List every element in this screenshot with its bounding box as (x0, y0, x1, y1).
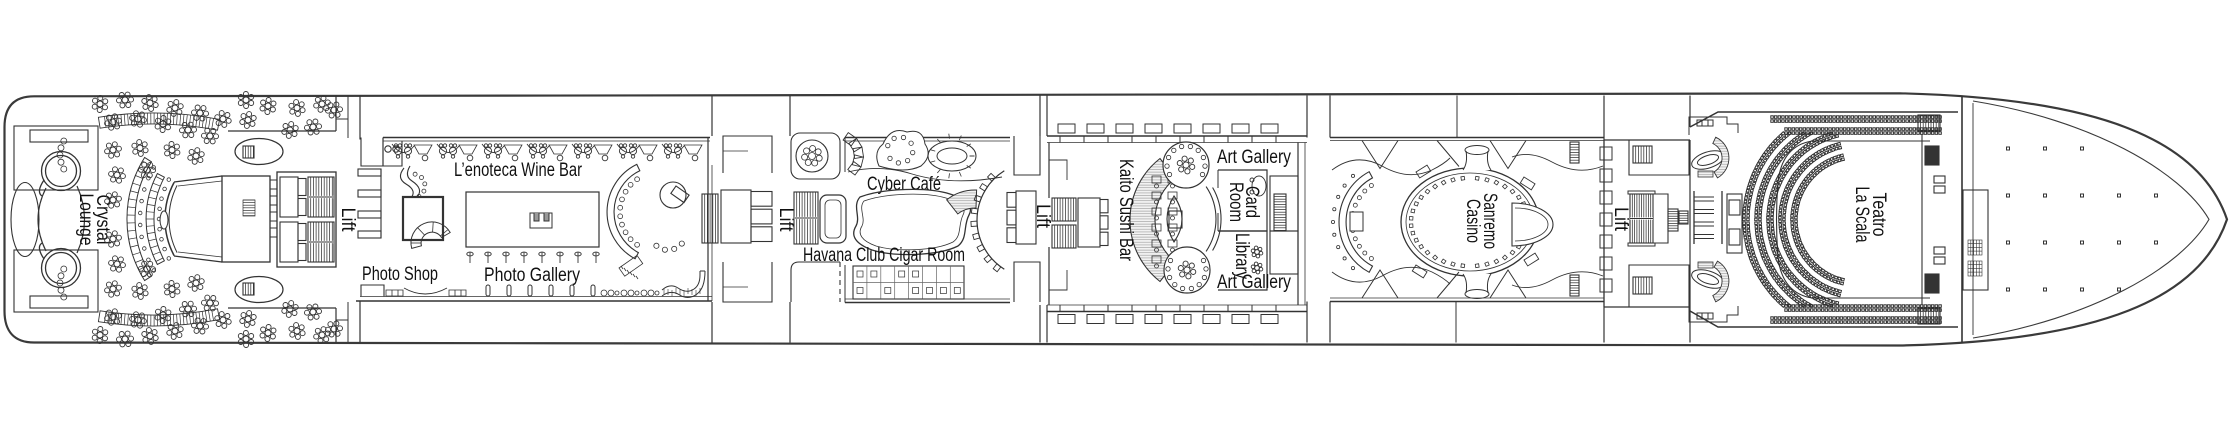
svg-text:Lift: Lift (1032, 204, 1053, 229)
svg-text:Havana Club Cigar Room: Havana Club Cigar Room (803, 245, 965, 266)
svg-text:Photo Shop: Photo Shop (362, 264, 438, 285)
svg-text:La Scala: La Scala (1851, 187, 1872, 243)
svg-text:Casino: Casino (1462, 199, 1483, 243)
svg-text:Photo Gallery: Photo Gallery (484, 265, 580, 286)
svg-text:Lift: Lift (337, 208, 358, 233)
svg-text:Lounge: Lounge (75, 194, 96, 246)
svg-text:Room: Room (1225, 182, 1246, 222)
svg-text:Art Gallery: Art Gallery (1217, 272, 1291, 293)
svg-text:Lift: Lift (1610, 207, 1631, 232)
svg-text:Art Gallery: Art Gallery (1217, 147, 1291, 168)
svg-text:L’enoteca Wine Bar: L’enoteca Wine Bar (454, 160, 583, 181)
svg-text:Lift: Lift (775, 208, 796, 233)
svg-text:Kaito Sushi Bar: Kaito Sushi Bar (1115, 159, 1136, 262)
